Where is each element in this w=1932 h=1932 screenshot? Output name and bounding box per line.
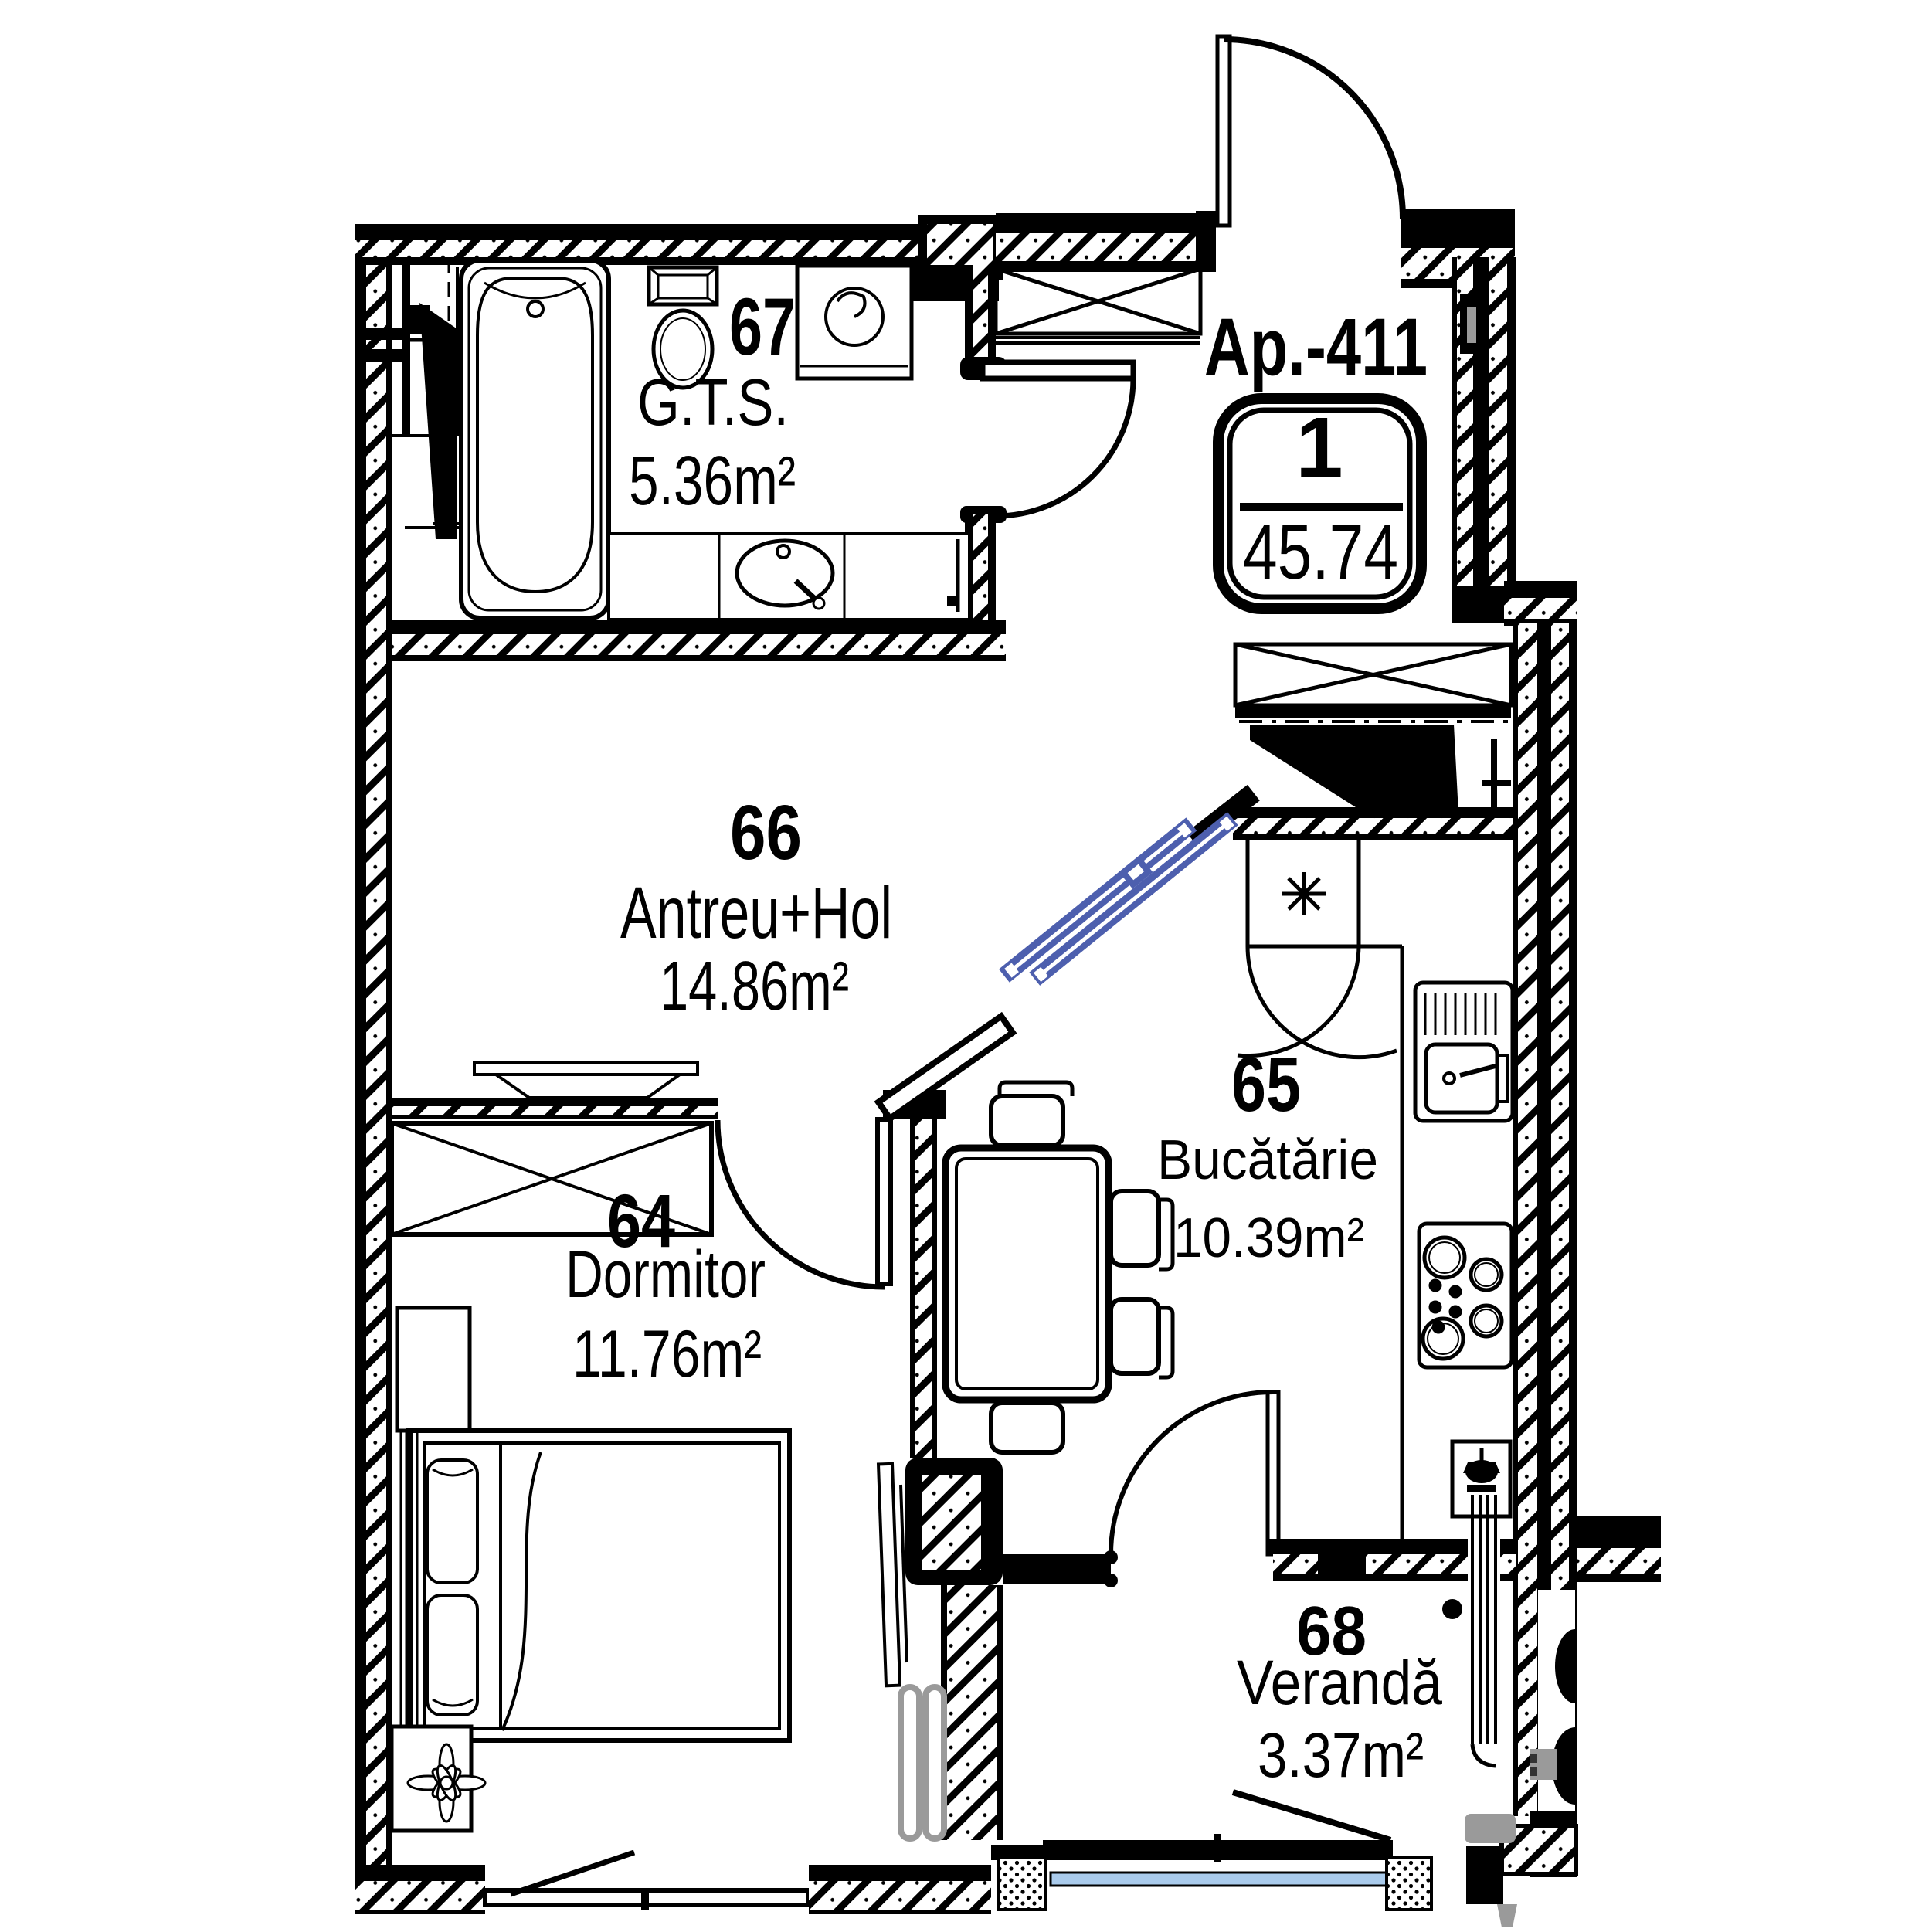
svg-text:3.37m²: 3.37m² xyxy=(1258,1720,1424,1791)
svg-text:45.74: 45.74 xyxy=(1243,509,1398,596)
svg-text:1: 1 xyxy=(1295,400,1343,495)
svg-text:Bucătărie: Bucătărie xyxy=(1157,1129,1378,1191)
svg-text:67: 67 xyxy=(729,282,796,372)
svg-text:66: 66 xyxy=(730,789,802,876)
svg-text:65: 65 xyxy=(1231,1041,1301,1128)
svg-text:14.86m²: 14.86m² xyxy=(660,948,849,1025)
svg-text:10.39m²: 10.39m² xyxy=(1173,1207,1364,1269)
svg-text:Verandă: Verandă xyxy=(1237,1648,1442,1718)
svg-text:11.76m²: 11.76m² xyxy=(572,1317,762,1391)
svg-text:G.T.S.: G.T.S. xyxy=(637,366,789,440)
svg-text:5.36m²: 5.36m² xyxy=(629,443,796,520)
svg-text:Dormitor: Dormitor xyxy=(565,1238,766,1312)
svg-text:Antreu+Hol: Antreu+Hol xyxy=(620,872,892,954)
svg-text:Ap.-411: Ap.-411 xyxy=(1204,302,1428,392)
